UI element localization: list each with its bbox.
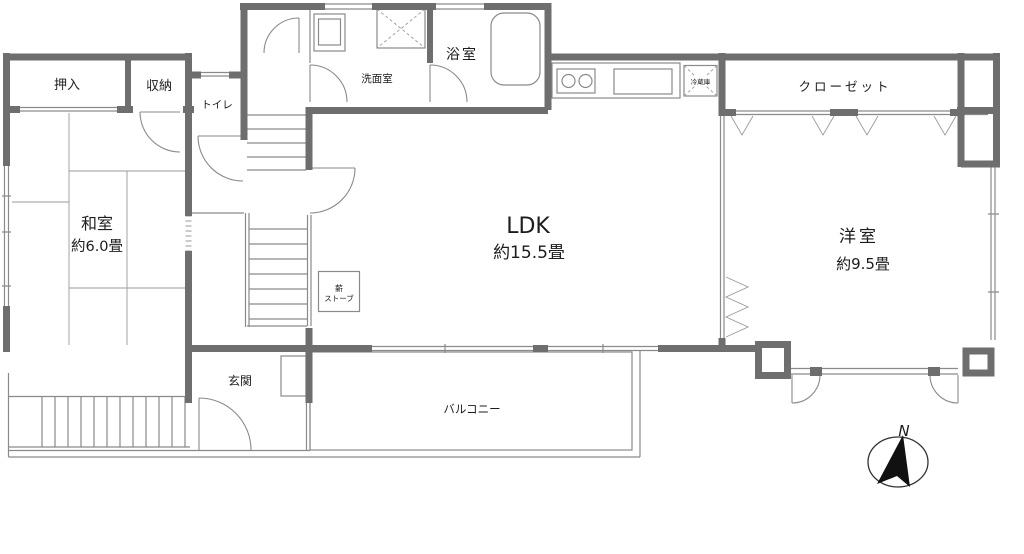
label-balcony: バルコニー bbox=[443, 402, 500, 416]
washer-pan bbox=[377, 9, 425, 48]
site-boundary bbox=[9, 350, 641, 457]
label-toilet: トイレ bbox=[201, 99, 233, 111]
closet-fold-mark-1 bbox=[731, 116, 753, 135]
compass-n-label: N bbox=[898, 422, 909, 440]
closet-fold-mark-3 bbox=[856, 116, 878, 135]
oshiire-fusuma-line bbox=[20, 108, 117, 112]
label-ldk-size: 約15.5畳 bbox=[493, 243, 565, 263]
label-wood-stove-2: ストーブ bbox=[324, 293, 354, 303]
walls bbox=[3, 3, 1000, 403]
floor-plan-page: N 押入 収納 トイレ 洗面室 浴室 和室 約6.0畳 LDK 約15.5畳 洋… bbox=[0, 0, 1024, 554]
shoe-cabinet bbox=[281, 356, 306, 396]
label-refrigerator: 冷蔵庫 bbox=[691, 77, 711, 86]
stairs-lower bbox=[192, 213, 307, 327]
floor-plan-drawing: N 押入 収納 トイレ 洗面室 浴室 和室 約6.0畳 LDK 約15.5畳 洋… bbox=[0, 0, 1024, 554]
washitsu-opening bbox=[185, 214, 192, 251]
door-toilet bbox=[198, 136, 243, 181]
window-toilet bbox=[201, 73, 229, 77]
sash-stop-right bbox=[928, 367, 940, 376]
balcony-outline bbox=[310, 352, 632, 450]
door-yoshitsu-south-right bbox=[930, 375, 958, 403]
window-washroom-top bbox=[325, 2, 372, 12]
sash-stop-left bbox=[810, 367, 822, 376]
label-oshiire: 押入 bbox=[54, 78, 80, 93]
closet-fold-mark-4 bbox=[934, 116, 956, 135]
door-hall-top bbox=[264, 18, 299, 53]
label-yoshitsu: 洋室 bbox=[839, 227, 879, 247]
door-yoshitsu-south-left bbox=[792, 375, 820, 403]
bathtub bbox=[491, 13, 540, 85]
walls-layer bbox=[3, 2, 1000, 404]
door-genkan bbox=[199, 398, 251, 450]
label-washroom: 洗面室 bbox=[361, 72, 393, 85]
window-west bbox=[2, 163, 11, 308]
outdoor-steps bbox=[9, 397, 191, 448]
ldk-yoshitsu-partition bbox=[721, 116, 725, 340]
pillar-southeast bbox=[966, 351, 991, 373]
pillar-southwest bbox=[759, 345, 788, 376]
window-east bbox=[988, 167, 999, 340]
label-yoshitsu-size: 約9.5畳 bbox=[836, 255, 890, 273]
door-ldk bbox=[310, 168, 355, 213]
door-bath bbox=[430, 65, 467, 102]
label-ldk: LDK bbox=[506, 214, 550, 239]
door-shuno bbox=[140, 112, 180, 152]
closet-fold-mark-2 bbox=[812, 116, 834, 135]
label-washitsu-size: 約6.0畳 bbox=[71, 238, 123, 255]
window-bath-top bbox=[436, 2, 484, 12]
accordion-screen bbox=[726, 277, 748, 337]
label-genkan: 玄関 bbox=[228, 373, 252, 388]
compass-needle bbox=[877, 435, 910, 487]
door-washroom bbox=[310, 65, 347, 102]
genkan-porch-edge bbox=[307, 403, 311, 450]
label-shuno: 収納 bbox=[146, 79, 172, 94]
compass: N bbox=[868, 422, 928, 487]
fixtures-layer bbox=[185, 9, 717, 396]
label-wood-stove-1: 薪 bbox=[335, 283, 343, 293]
hall-partition bbox=[308, 215, 312, 326]
label-washitsu: 和室 bbox=[81, 214, 113, 233]
label-closet: クローゼット bbox=[798, 79, 891, 94]
stairs-upper bbox=[247, 115, 306, 170]
label-bath: 浴室 bbox=[446, 46, 478, 63]
